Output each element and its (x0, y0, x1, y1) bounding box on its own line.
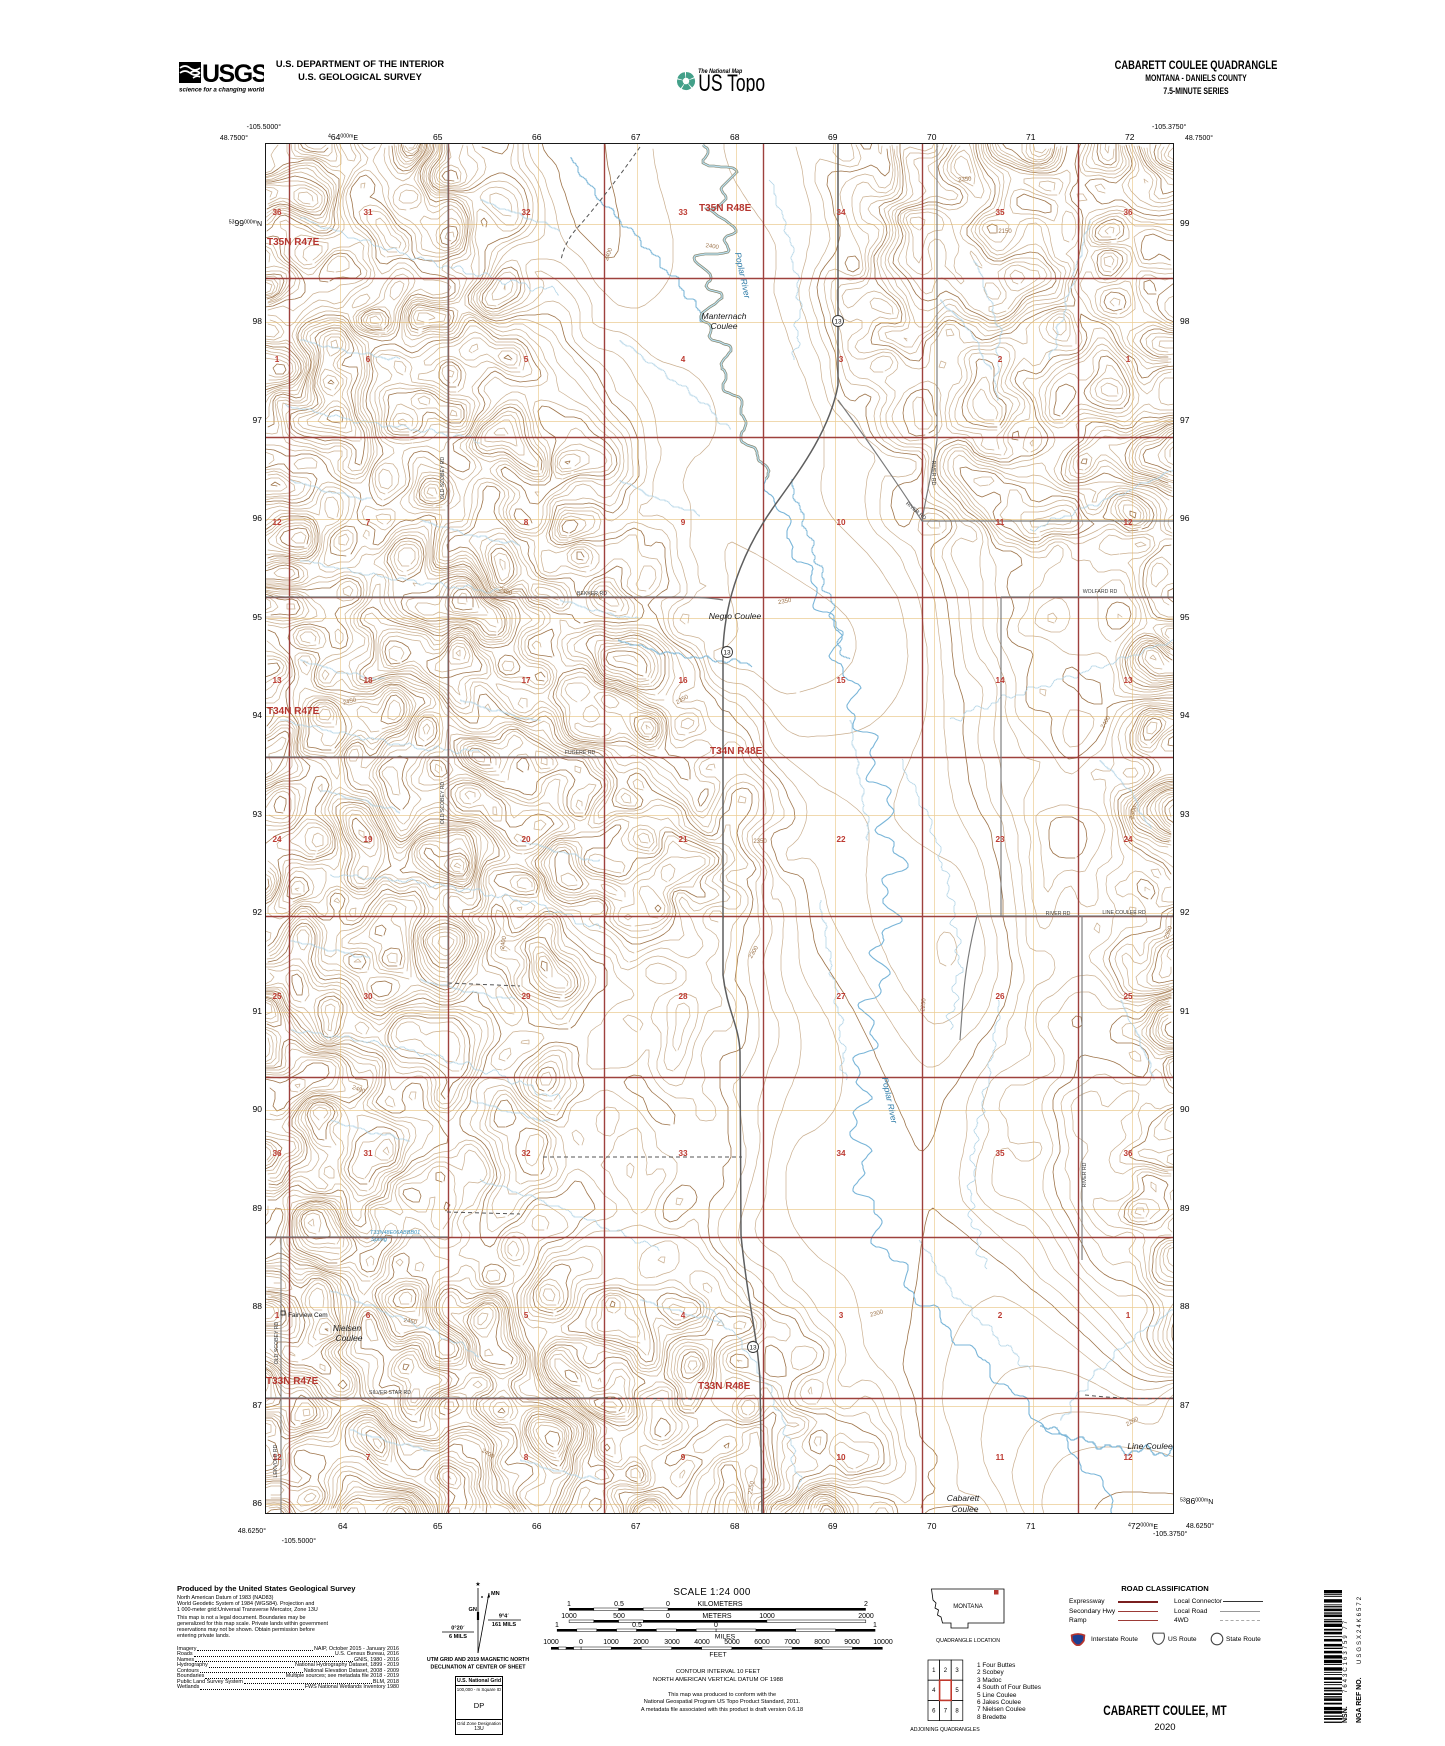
svg-text:USGSX24K6572: USGSX24K6572 (1357, 1595, 1363, 1664)
svg-text:NGA REF NO.: NGA REF NO. (1356, 1677, 1363, 1723)
svg-text:NSN.: NSN. (1342, 1706, 1349, 1723)
svg-text:7643C163759 77: 7643C163759 77 (1343, 1619, 1349, 1693)
